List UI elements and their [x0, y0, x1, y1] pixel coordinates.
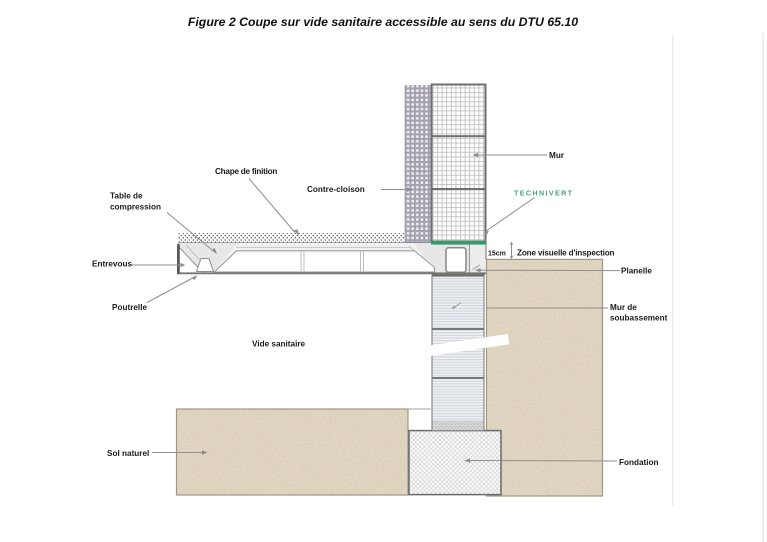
svg-text:Sol naturel: Sol naturel: [107, 449, 149, 458]
svg-text:Vide sanitaire: Vide sanitaire: [252, 340, 306, 349]
svg-text:Contre-cloison: Contre-cloison: [307, 185, 365, 194]
svg-text:Fondation: Fondation: [619, 458, 659, 467]
svg-text:15cm: 15cm: [488, 251, 506, 258]
svg-text:Entrevous: Entrevous: [92, 260, 132, 269]
svg-text:Mur de: Mur de: [610, 303, 637, 312]
svg-text:Figure 2 Coupe sur vide sanita: Figure 2 Coupe sur vide sanitaire access…: [188, 15, 578, 29]
svg-text:compression: compression: [110, 203, 161, 212]
svg-text:Chape de finition: Chape de finition: [215, 167, 277, 176]
svg-text:soubassement: soubassement: [610, 314, 668, 323]
svg-text:Poutrelle: Poutrelle: [112, 303, 147, 312]
svg-text:TECHNIVERT: TECHNIVERT: [514, 189, 573, 198]
svg-text:Table de: Table de: [110, 192, 143, 201]
svg-text:Zone visuelle d'inspection: Zone visuelle d'inspection: [517, 249, 615, 258]
svg-text:Mur: Mur: [549, 151, 565, 160]
svg-text:Planelle: Planelle: [621, 267, 652, 276]
